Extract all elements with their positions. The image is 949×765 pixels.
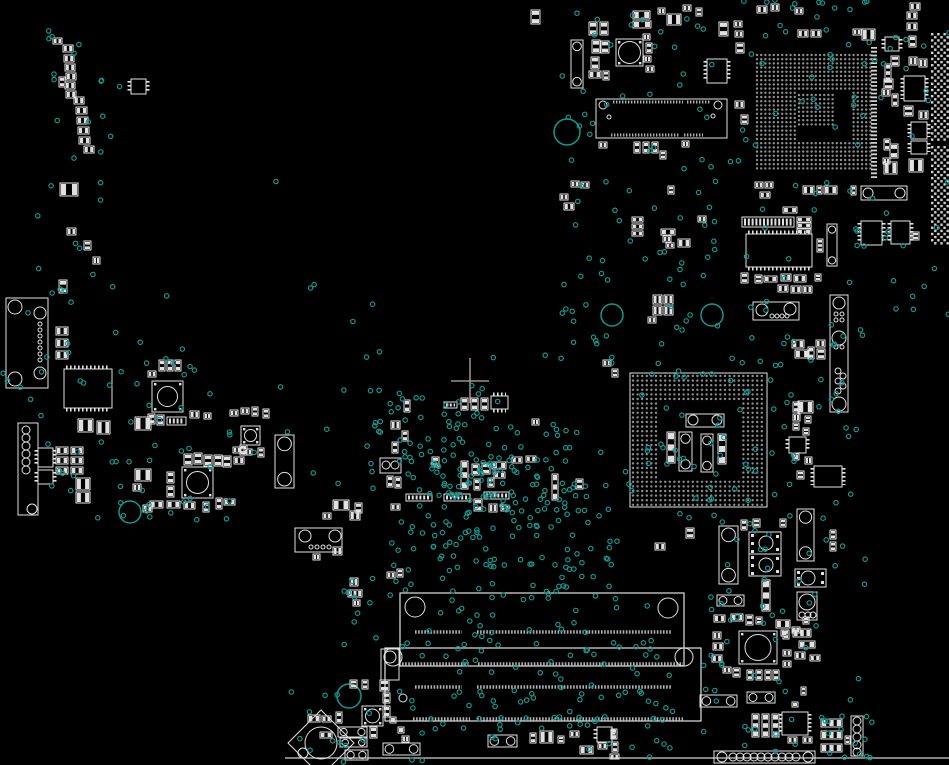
passive-component[interactable]	[698, 216, 706, 222]
passive-component[interactable]	[65, 64, 75, 71]
via-testpoint	[858, 328, 862, 332]
passive-component[interactable]	[157, 415, 164, 425]
ic-chip[interactable]	[36, 470, 55, 484]
passive-component[interactable]	[792, 702, 798, 707]
passive-component[interactable]	[803, 286, 812, 293]
passive-component[interactable]	[313, 554, 320, 560]
passive-component[interactable]	[148, 371, 156, 377]
passive-component[interactable]	[78, 127, 89, 134]
passive-component[interactable]	[773, 670, 779, 680]
passive-component[interactable]	[599, 142, 607, 148]
connector[interactable]	[753, 302, 799, 320]
passive-component[interactable]	[909, 159, 923, 172]
passive-component[interactable]	[214, 455, 222, 466]
passive-component[interactable]	[815, 274, 821, 281]
via-testpoint	[824, 538, 828, 542]
passive-component[interactable]	[801, 687, 806, 695]
dimm-slot[interactable]	[384, 648, 701, 721]
via-testpoint	[458, 467, 462, 471]
passive-component[interactable]	[830, 530, 836, 539]
bga-ic[interactable]	[756, 54, 872, 170]
via-testpoint	[409, 582, 413, 586]
via-testpoint	[587, 256, 591, 260]
passive-component[interactable]	[845, 736, 850, 744]
ic-chip[interactable]	[36, 448, 55, 467]
passive-component[interactable]	[723, 667, 731, 673]
ic-chip[interactable]	[129, 79, 148, 94]
passive-component[interactable]	[56, 457, 68, 464]
passive-component[interactable]	[646, 66, 654, 72]
connector[interactable]	[714, 751, 815, 763]
passive-component[interactable]	[66, 73, 76, 80]
capacitor[interactable]	[861, 186, 907, 200]
passive-component[interactable]	[323, 513, 331, 519]
passive-component[interactable]	[909, 36, 916, 47]
passive-component[interactable]	[741, 520, 747, 530]
via-testpoint	[922, 284, 926, 288]
passive-component[interactable]	[530, 733, 536, 743]
ic-chip[interactable]	[746, 232, 812, 269]
ic-chip[interactable]	[889, 221, 912, 244]
passive-component[interactable]	[387, 476, 393, 487]
connector[interactable]	[596, 99, 727, 138]
passive-component[interactable]	[391, 504, 400, 510]
dimm-slot[interactable]	[400, 593, 684, 666]
passive-component[interactable]	[71, 467, 83, 474]
passive-component[interactable]	[159, 360, 165, 371]
passive-component[interactable]	[667, 14, 681, 25]
passive-component[interactable]	[797, 471, 804, 479]
passive-component[interactable]	[646, 43, 652, 53]
passive-component[interactable]	[589, 71, 601, 78]
passive-component[interactable]	[663, 236, 671, 242]
passive-component[interactable]	[892, 94, 898, 106]
passive-component[interactable]	[333, 547, 342, 555]
passive-component[interactable]	[564, 203, 574, 210]
passive-component[interactable]	[821, 744, 842, 752]
passive-component[interactable]	[387, 572, 395, 578]
passive-component[interactable]	[216, 498, 222, 509]
passive-component[interactable]	[713, 632, 721, 639]
connector[interactable]	[18, 423, 38, 515]
passive-component[interactable]	[765, 670, 771, 680]
via-testpoint	[451, 443, 455, 447]
via-testpoint	[448, 540, 452, 544]
passive-component[interactable]	[853, 29, 861, 35]
passive-component[interactable]	[603, 71, 609, 80]
passive-component[interactable]	[494, 472, 505, 478]
connector[interactable]	[749, 532, 781, 554]
passive-component[interactable]	[634, 142, 640, 153]
passive-component[interactable]	[362, 680, 368, 689]
passive-component[interactable]	[320, 732, 332, 738]
capacitor[interactable]	[571, 40, 583, 88]
ic-chip[interactable]	[909, 141, 929, 154]
passive-component[interactable]	[71, 447, 83, 454]
capacitor[interactable]	[747, 692, 775, 703]
passive-component[interactable]	[398, 727, 404, 733]
passive-component[interactable]	[632, 224, 643, 229]
passive-component[interactable]	[56, 327, 68, 335]
passive-component[interactable]	[824, 186, 837, 194]
passive-component[interactable]	[592, 40, 600, 53]
via-testpoint	[740, 128, 744, 132]
passive-component[interactable]	[652, 142, 658, 153]
passive-component[interactable]	[660, 151, 666, 159]
qfn-ic[interactable]	[739, 631, 777, 664]
passive-component[interactable]	[241, 408, 249, 414]
passive-component[interactable]	[862, 29, 875, 40]
passive-component[interactable]	[667, 432, 675, 463]
passive-component[interactable]	[59, 77, 65, 87]
via-testpoint	[510, 511, 514, 515]
passive-component[interactable]	[97, 421, 110, 434]
passive-component[interactable]	[783, 650, 791, 656]
passive-component[interactable]	[791, 286, 801, 293]
passive-component[interactable]	[811, 30, 821, 37]
passive-component[interactable]	[830, 542, 836, 551]
passive-component[interactable]	[803, 428, 809, 435]
passive-component[interactable]	[762, 580, 770, 611]
resistor-array[interactable]	[742, 217, 794, 227]
passive-component[interactable]	[771, 4, 779, 11]
ic-chip[interactable]	[64, 367, 112, 410]
passive-component[interactable]	[696, 8, 702, 16]
passive-component[interactable]	[795, 652, 805, 659]
ic-chip[interactable]	[780, 712, 810, 735]
via-testpoint	[544, 432, 548, 436]
passive-component[interactable]	[532, 419, 539, 425]
via-testpoint	[645, 604, 649, 608]
passive-component[interactable]	[755, 182, 763, 188]
connector[interactable]	[830, 295, 848, 412]
via-testpoint	[696, 190, 700, 194]
passive-component[interactable]	[713, 643, 723, 650]
connector[interactable]	[851, 716, 863, 756]
passive-component[interactable]	[581, 182, 589, 188]
passive-component[interactable]	[668, 186, 674, 194]
ic-chip[interactable]	[705, 59, 729, 83]
passive-component[interactable]	[799, 641, 815, 648]
passive-component[interactable]	[797, 223, 811, 228]
passive-component[interactable]	[780, 519, 786, 527]
passive-component[interactable]	[531, 10, 540, 24]
passive-component[interactable]	[204, 413, 211, 419]
passive-component[interactable]	[322, 716, 331, 722]
passive-component[interactable]	[234, 457, 244, 464]
via-testpoint	[709, 607, 713, 611]
passive-component[interactable]	[632, 217, 643, 222]
passive-component[interactable]	[795, 350, 809, 358]
via-testpoint	[681, 282, 685, 286]
passive-component[interactable]	[526, 456, 536, 462]
passive-component[interactable]	[194, 453, 202, 464]
passive-component[interactable]	[383, 706, 390, 717]
passive-component[interactable]	[757, 6, 767, 13]
capacitor[interactable]	[383, 743, 420, 755]
passive-component[interactable]	[719, 22, 728, 36]
passive-component[interactable]	[230, 410, 238, 416]
passive-component[interactable]	[816, 340, 825, 347]
passive-component[interactable]	[752, 714, 759, 737]
passive-component[interactable]	[909, 57, 917, 65]
passive-component[interactable]	[56, 447, 68, 454]
passive-component[interactable]	[76, 478, 90, 490]
passive-component[interactable]	[489, 504, 497, 512]
passive-component[interactable]	[805, 416, 811, 423]
passive-component[interactable]	[678, 239, 690, 247]
passive-component[interactable]	[910, 3, 920, 10]
via-testpoint	[411, 475, 415, 479]
passive-component[interactable]	[643, 34, 650, 40]
connector[interactable]	[795, 569, 826, 587]
passive-component[interactable]	[794, 275, 806, 282]
passive-component[interactable]	[683, 5, 691, 11]
passive-component[interactable]	[798, 30, 808, 37]
passive-component[interactable]	[184, 454, 192, 465]
via-testpoint	[99, 150, 103, 154]
passive-component[interactable]	[919, 59, 927, 67]
passive-component[interactable]	[71, 457, 83, 464]
passive-component[interactable]	[736, 43, 744, 53]
passive-component[interactable]	[402, 736, 409, 742]
passive-component[interactable]	[805, 457, 812, 464]
board-edge-connector[interactable]	[931, 146, 949, 245]
passive-component[interactable]	[370, 727, 377, 738]
capacitor[interactable]	[275, 435, 294, 488]
passive-component[interactable]	[764, 276, 777, 282]
ic-chip[interactable]	[812, 466, 844, 487]
passive-component[interactable]	[783, 207, 797, 213]
via-testpoint	[764, 308, 768, 312]
passive-component[interactable]	[714, 615, 725, 622]
passive-component[interactable]	[793, 629, 811, 637]
connector[interactable]	[749, 554, 781, 576]
passive-component[interactable]	[60, 183, 78, 196]
passive-component[interactable]	[308, 715, 320, 722]
passive-component[interactable]	[653, 306, 662, 315]
passive-component[interactable]	[810, 655, 820, 661]
via-testpoint	[478, 624, 482, 628]
passive-component[interactable]	[600, 22, 608, 35]
passive-component[interactable]	[661, 229, 675, 235]
passive-component[interactable]	[907, 12, 917, 19]
passive-component[interactable]	[793, 414, 800, 421]
passive-component[interactable]	[882, 89, 890, 96]
passive-component[interactable]	[93, 257, 100, 264]
qfn-ic[interactable]	[616, 39, 643, 66]
qfn-ic[interactable]	[182, 467, 213, 498]
passive-component[interactable]	[612, 742, 618, 752]
passive-component[interactable]	[682, 141, 689, 147]
passive-component[interactable]	[391, 421, 400, 429]
passive-component[interactable]	[817, 239, 823, 252]
passive-component[interactable]	[223, 456, 231, 467]
passive-component[interactable]	[686, 528, 694, 538]
passive-component[interactable]	[175, 360, 181, 371]
via-testpoint	[553, 672, 557, 676]
passive-component[interactable]	[53, 38, 62, 44]
via-testpoint	[81, 381, 85, 385]
via-testpoint	[712, 513, 716, 517]
passive-component[interactable]	[735, 101, 744, 108]
passive-component[interactable]	[167, 472, 174, 483]
passive-component[interactable]	[397, 569, 403, 577]
capacitor[interactable]	[827, 224, 837, 266]
passive-component[interactable]	[224, 499, 235, 505]
passive-component[interactable]	[150, 501, 163, 508]
passive-component[interactable]	[78, 419, 93, 432]
passive-component[interactable]	[190, 411, 199, 418]
passive-component[interactable]	[392, 442, 398, 453]
passive-component[interactable]	[135, 469, 151, 481]
passive-component[interactable]	[79, 137, 90, 144]
passive-component[interactable]	[797, 217, 811, 222]
passive-component[interactable]	[755, 275, 762, 283]
passive-component[interactable]	[336, 712, 342, 723]
via-testpoint	[298, 736, 302, 740]
connector[interactable]	[381, 649, 399, 680]
passive-component[interactable]	[84, 241, 91, 250]
passive-component[interactable]	[644, 56, 651, 62]
passive-component[interactable]	[884, 79, 893, 89]
via-testpoint	[1, 371, 5, 375]
passive-component[interactable]	[471, 398, 478, 410]
passive-component[interactable]	[203, 502, 209, 512]
via-testpoint	[680, 261, 684, 265]
passive-component[interactable]	[741, 115, 748, 124]
passive-component[interactable]	[919, 111, 928, 119]
resistor-array[interactable]	[167, 417, 186, 425]
passive-component[interactable]	[776, 620, 790, 628]
passive-component[interactable]	[84, 146, 94, 153]
passive-component[interactable]	[571, 181, 579, 187]
via-testpoint	[450, 598, 454, 602]
passive-component[interactable]	[481, 398, 488, 410]
passive-component[interactable]	[558, 736, 564, 743]
passive-component[interactable]	[404, 400, 410, 412]
passive-component[interactable]	[798, 401, 813, 413]
passive-component[interactable]	[591, 57, 599, 69]
passive-component[interactable]	[570, 731, 579, 737]
ic-chip[interactable]	[902, 76, 927, 101]
passive-component[interactable]	[765, 182, 773, 188]
passive-component[interactable]	[76, 492, 90, 503]
passive-component[interactable]	[746, 615, 753, 625]
passive-component[interactable]	[63, 45, 73, 52]
via-testpoint	[610, 355, 614, 359]
passive-component[interactable]	[252, 407, 258, 416]
via-testpoint	[630, 745, 634, 749]
passive-component[interactable]	[64, 55, 74, 62]
passive-component[interactable]	[733, 668, 740, 677]
qfn-ic[interactable]	[152, 381, 183, 412]
via-testpoint	[560, 74, 564, 78]
passive-component[interactable]	[762, 714, 769, 737]
passive-component[interactable]	[167, 486, 174, 497]
passive-component[interactable]	[655, 543, 665, 550]
passive-component[interactable]	[741, 273, 748, 283]
passive-component[interactable]	[390, 717, 396, 723]
passive-component[interactable]	[793, 423, 799, 430]
passive-component[interactable]	[817, 349, 825, 359]
passive-component[interactable]	[258, 448, 264, 457]
passive-component[interactable]	[244, 449, 252, 455]
board-edge-connector[interactable]	[931, 33, 949, 141]
capacitor[interactable]	[719, 526, 738, 584]
ic-chip[interactable]	[859, 221, 884, 245]
passive-component[interactable]	[803, 186, 814, 194]
passive-component[interactable]	[74, 97, 84, 104]
passive-component[interactable]	[612, 369, 618, 377]
passive-component[interactable]	[648, 317, 656, 323]
passive-component[interactable]	[461, 398, 468, 410]
passive-component[interactable]	[333, 500, 349, 510]
passive-component[interactable]	[821, 731, 842, 739]
via-testpoint	[285, 430, 289, 434]
passive-component[interactable]	[552, 474, 558, 500]
passive-component[interactable]	[756, 670, 762, 680]
via-testpoint	[667, 673, 671, 677]
passive-component[interactable]	[664, 295, 673, 304]
via-testpoint	[460, 606, 464, 610]
passive-component[interactable]	[783, 661, 791, 667]
passive-component[interactable]	[760, 192, 770, 198]
passive-component[interactable]	[890, 144, 898, 158]
passive-component[interactable]	[353, 600, 360, 606]
passive-component[interactable]	[67, 228, 76, 235]
passive-component[interactable]	[632, 231, 643, 236]
pcb-board-canvas[interactable]	[0, 0, 949, 765]
ic-chip[interactable]	[787, 437, 808, 453]
passive-component[interactable]	[167, 501, 180, 508]
capacitor[interactable]	[701, 434, 713, 472]
passive-component[interactable]	[383, 693, 390, 703]
via-testpoint	[879, 95, 883, 99]
passive-component[interactable]	[884, 139, 890, 150]
passive-component[interactable]	[907, 23, 917, 30]
capacitor[interactable]	[679, 432, 692, 471]
passive-component[interactable]	[560, 194, 568, 200]
passive-component[interactable]	[803, 737, 812, 743]
qfn-ic[interactable]	[241, 426, 260, 445]
passive-component[interactable]	[735, 31, 743, 37]
passive-component[interactable]	[795, 8, 803, 14]
passive-component[interactable]	[76, 107, 87, 114]
qfn-ic[interactable]	[362, 706, 383, 726]
passive-component[interactable]	[395, 477, 401, 488]
ic-chip[interactable]	[909, 122, 929, 139]
passive-component[interactable]	[65, 82, 75, 89]
passive-component[interactable]	[778, 285, 788, 292]
passive-component[interactable]	[653, 295, 662, 304]
capacitor[interactable]	[717, 595, 744, 606]
passive-component[interactable]	[904, 106, 913, 116]
passive-component[interactable]	[601, 41, 609, 53]
via-testpoint	[789, 393, 793, 397]
passive-component[interactable]	[598, 743, 607, 749]
passive-component[interactable]	[540, 731, 553, 743]
via-testpoint	[459, 536, 463, 540]
passive-component[interactable]	[263, 409, 269, 418]
passive-component[interactable]	[734, 21, 742, 27]
via-testpoint	[610, 361, 614, 365]
capacitor[interactable]	[488, 735, 517, 747]
passive-component[interactable]	[666, 243, 674, 248]
passive-component[interactable]	[753, 519, 760, 527]
passive-component[interactable]	[658, 8, 665, 14]
passive-component[interactable]	[891, 56, 899, 66]
